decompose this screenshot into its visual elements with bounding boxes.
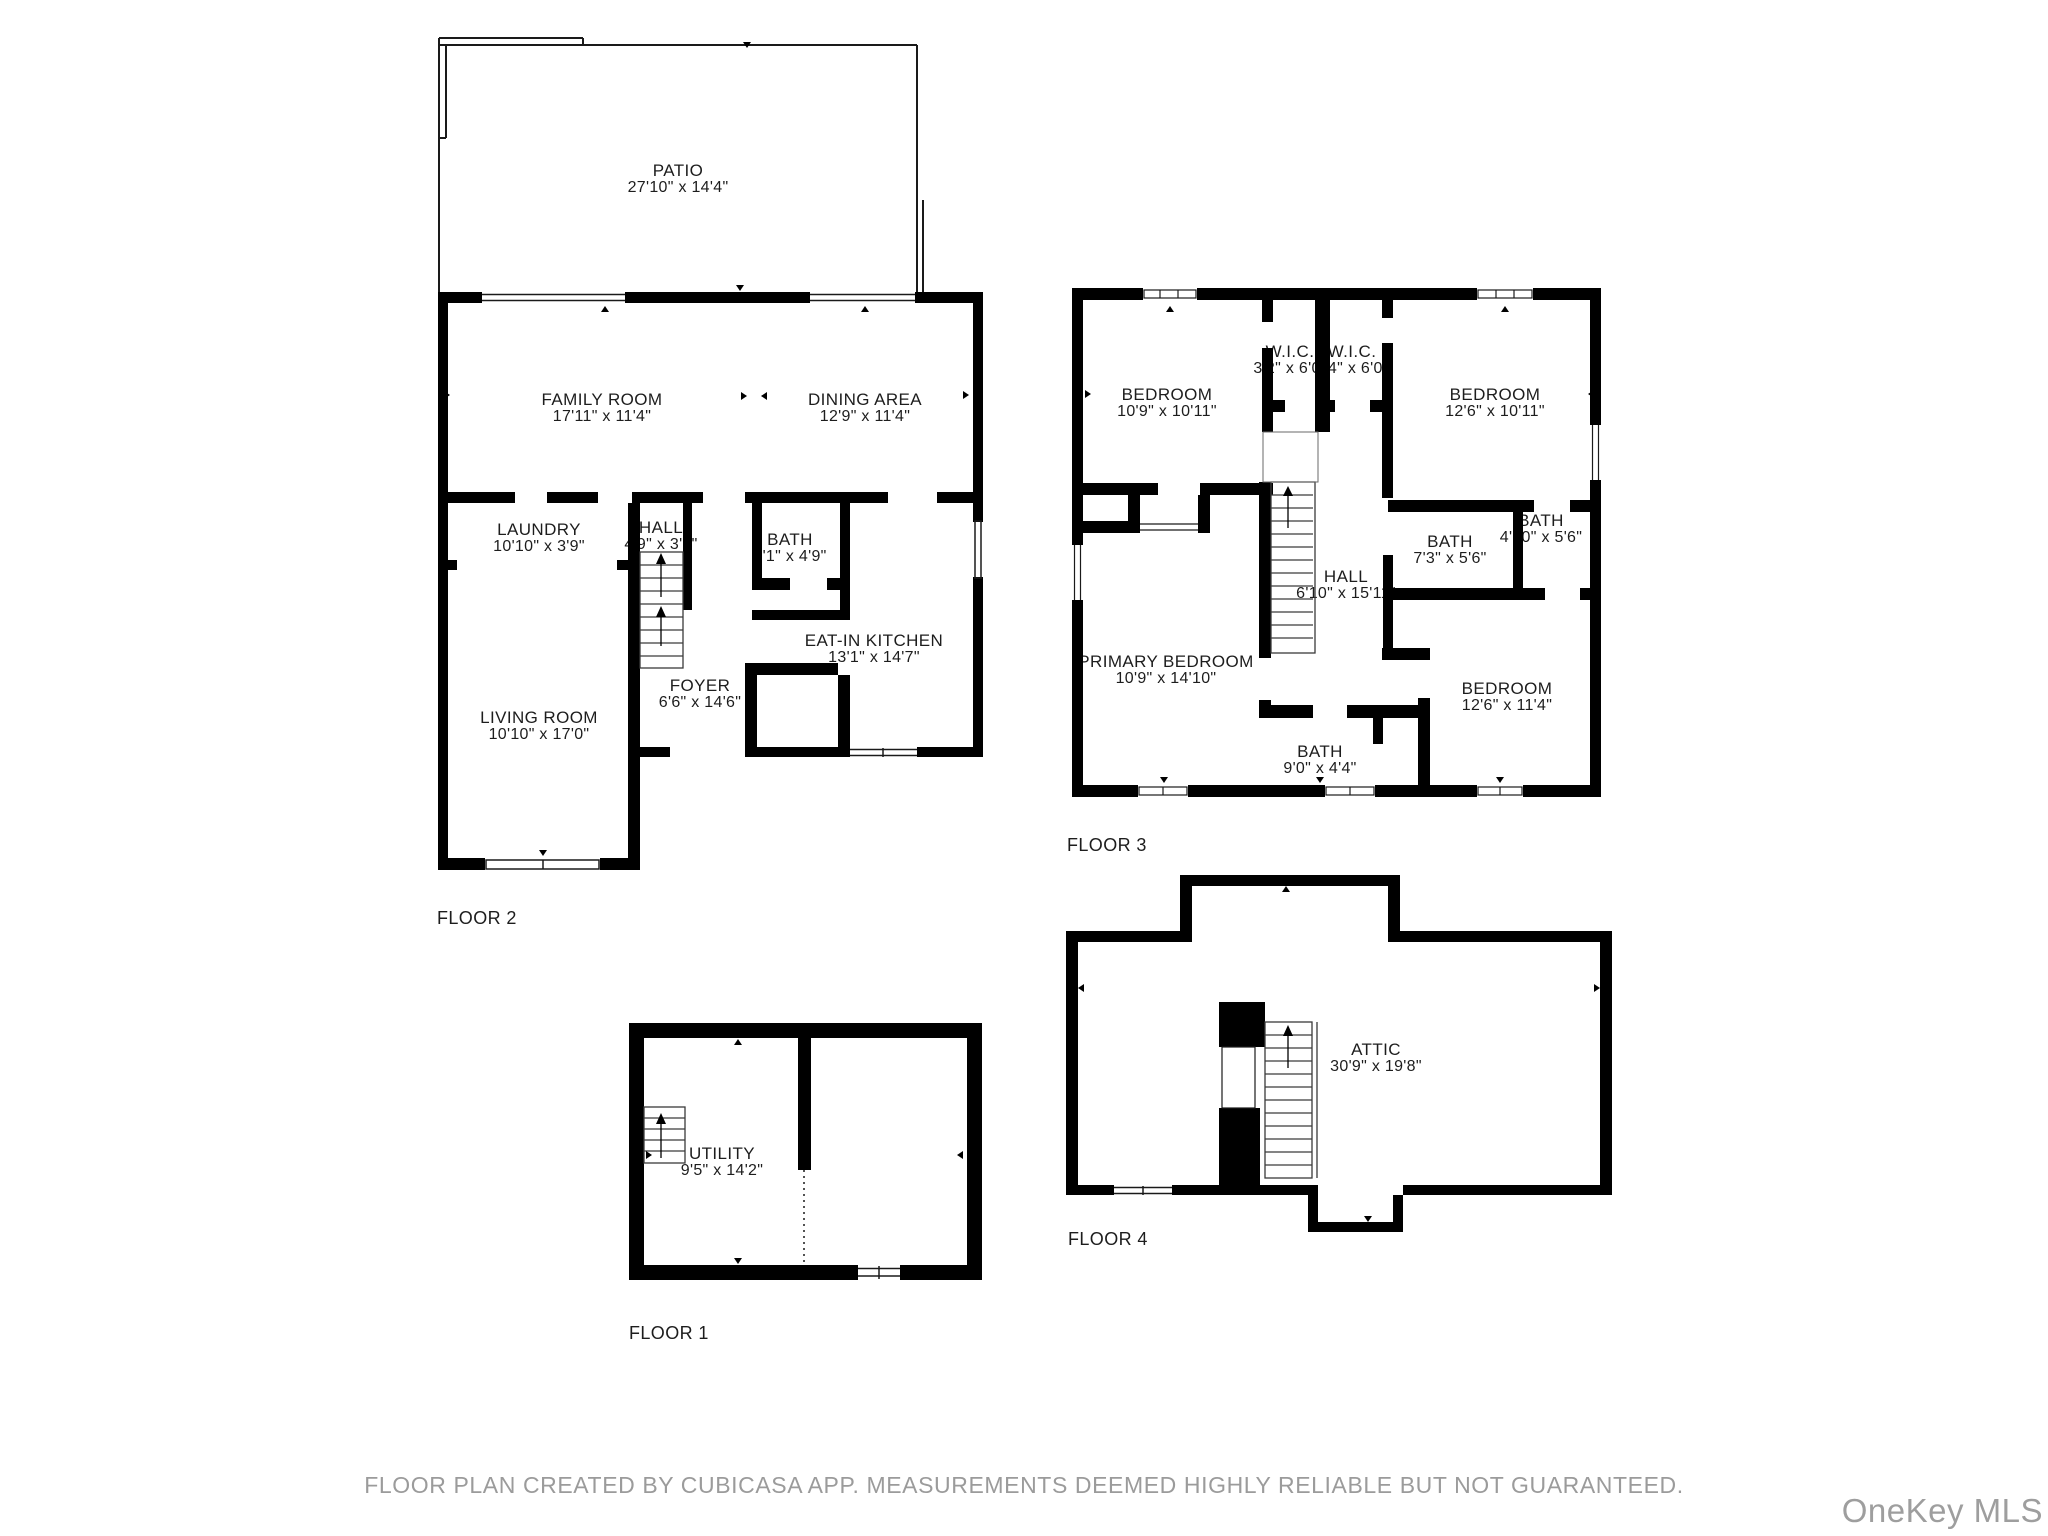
floor4-walls	[1066, 875, 1612, 1232]
floor2-walls	[438, 292, 983, 870]
watermark-onekey-mls: OneKey MLS	[1842, 1492, 2043, 1530]
floor2-patio-outline	[439, 38, 923, 292]
floor3-stairs	[1263, 432, 1318, 653]
floor2-ticks	[444, 42, 969, 856]
floorplan-drawing	[0, 0, 2048, 1536]
floor2-openings	[482, 295, 982, 870]
disclaimer-text: FLOOR PLAN CREATED BY CUBICASA APP. MEAS…	[0, 1472, 2048, 1499]
floor4-stairs	[1265, 1022, 1317, 1178]
floor3-walls	[1072, 288, 1601, 797]
floor1-openings	[804, 1170, 900, 1279]
floorplan-page: PATIO27'10" x 14'4"FAMILY ROOM17'11" x 1…	[0, 0, 2048, 1536]
